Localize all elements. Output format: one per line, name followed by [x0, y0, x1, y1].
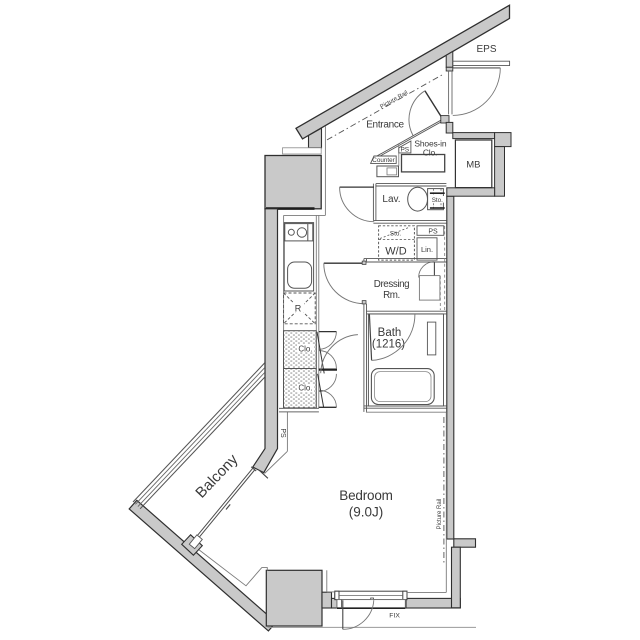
svg-text:Counter: Counter [372, 157, 394, 164]
svg-text:W/D: W/D [385, 246, 406, 258]
svg-text:PS: PS [279, 428, 286, 438]
svg-text:MB: MB [466, 160, 480, 171]
svg-text:Entrance: Entrance [366, 120, 404, 131]
svg-text:Sto.: Sto. [390, 231, 401, 238]
svg-text:FIX: FIX [389, 612, 400, 619]
svg-text:Sto.: Sto. [432, 197, 443, 204]
svg-text:Bedroom: Bedroom [339, 488, 392, 503]
svg-text:Clo.: Clo. [423, 147, 437, 157]
svg-text:(9.0J): (9.0J) [349, 505, 384, 520]
svg-text:Clo.: Clo. [298, 384, 312, 393]
svg-text:Lin.: Lin. [421, 245, 433, 254]
svg-text:Rm.: Rm. [383, 290, 400, 301]
svg-text:Clo.: Clo. [298, 345, 312, 354]
svg-text:PS: PS [428, 228, 438, 235]
svg-text:Dressing: Dressing [374, 279, 409, 290]
svg-text:R: R [295, 304, 302, 314]
svg-text:Lav.: Lav. [382, 194, 400, 205]
svg-text:Bath: Bath [378, 327, 402, 339]
svg-text:Picture Rail: Picture Rail [437, 499, 443, 530]
svg-text:PS: PS [400, 147, 409, 154]
svg-text:EPS: EPS [476, 44, 496, 55]
